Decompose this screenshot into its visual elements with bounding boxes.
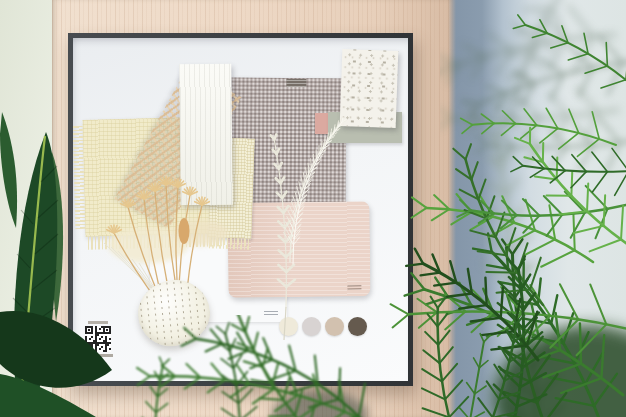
wall-left xyxy=(0,0,58,417)
tiny-label xyxy=(347,283,361,289)
qr-caption-bottom xyxy=(83,354,113,357)
wall-right xyxy=(448,0,626,417)
photo-moodboard-scene xyxy=(0,0,626,417)
color-palette-dots xyxy=(279,317,367,336)
palette-dot xyxy=(302,317,321,336)
fabric-tag xyxy=(286,79,306,87)
palette-dot xyxy=(325,317,344,336)
qr-code-block xyxy=(80,320,116,368)
white-plank-sample xyxy=(179,64,232,206)
mood-board xyxy=(73,38,408,381)
qr-code xyxy=(85,326,111,352)
palette-dot xyxy=(348,317,367,336)
picture-frame xyxy=(68,33,413,386)
palette-dot xyxy=(279,317,298,336)
terrazzo-sample xyxy=(340,49,399,128)
qr-caption-top xyxy=(88,321,108,324)
tiny-label xyxy=(264,309,278,315)
